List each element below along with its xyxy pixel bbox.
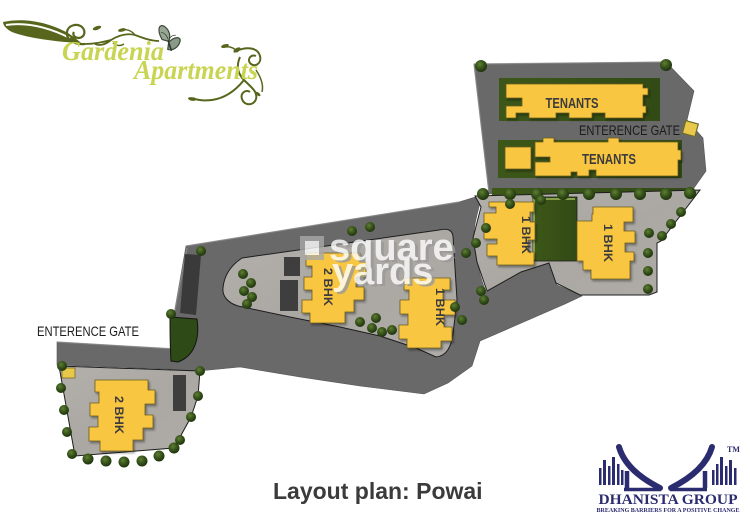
svg-text:ENTERENCE GATE: ENTERENCE GATE xyxy=(37,323,139,339)
svg-text:Layout plan: Powai: Layout plan: Powai xyxy=(273,478,483,504)
svg-text:1 BHK: 1 BHK xyxy=(519,216,531,255)
svg-text:TM: TM xyxy=(727,445,740,454)
svg-text:1 BHK: 1 BHK xyxy=(601,224,613,263)
svg-text:TENANTS: TENANTS xyxy=(582,152,636,168)
svg-text:DHANISTA GROUP: DHANISTA GROUP xyxy=(599,492,738,508)
svg-text:yards: yards xyxy=(332,251,433,293)
svg-text:BREAKING BARRIERS FOR A POSITI: BREAKING BARRIERS FOR A POSITIVE CHANGE xyxy=(597,507,740,514)
svg-text:ENTERENCE GATE: ENTERENCE GATE xyxy=(579,122,680,138)
svg-text:Apartments: Apartments xyxy=(132,55,258,85)
svg-text:TENANTS: TENANTS xyxy=(546,96,599,112)
svg-text:2 BHK: 2 BHK xyxy=(112,396,124,435)
